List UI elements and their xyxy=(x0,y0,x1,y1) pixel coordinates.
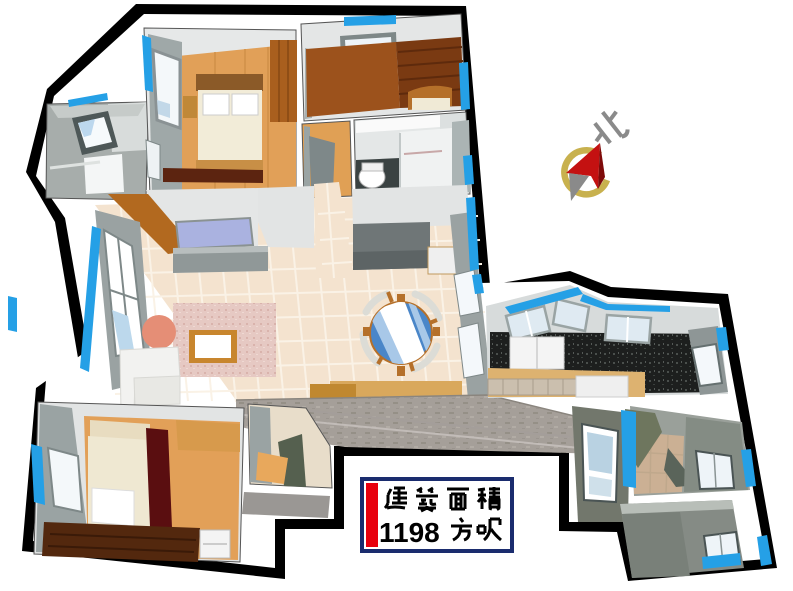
svg-text:1198: 1198 xyxy=(379,517,440,548)
